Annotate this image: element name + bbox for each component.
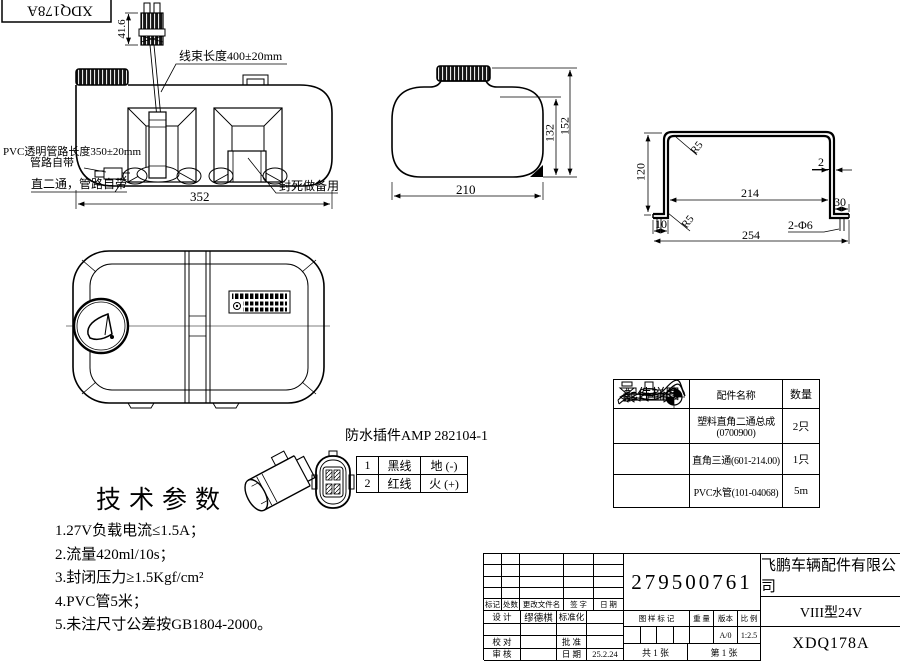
scale-value: 1:2.5: [738, 627, 761, 644]
revision-cell: [484, 588, 502, 599]
revision-cell: [594, 554, 624, 565]
dim-254: 254: [742, 229, 760, 242]
stamp-header-row: 图 样 标 记 重 量 版本 比 例: [624, 611, 761, 627]
pvc-tube-label-line2: 管路自带: [30, 157, 74, 169]
dim-132: 132: [543, 124, 556, 142]
pin-signal: 火 (+): [421, 475, 468, 493]
part-name: 塑料直角二通总成 (0700900): [690, 409, 783, 444]
tank-cap-front: [76, 69, 128, 85]
dim-152: 152: [558, 117, 571, 135]
part-qty: 2只: [783, 409, 820, 444]
check-label: 校 对: [484, 636, 521, 649]
date-value: 25.2.24: [587, 649, 624, 661]
strap-channel: [185, 251, 210, 403]
doc-code-rotated: XDQ178A: [14, 2, 106, 19]
sheet-row: 共 1 张 第 1 张: [624, 644, 761, 661]
sealed-spare-label: 封死做备用: [279, 180, 339, 193]
connector-pin: [334, 484, 340, 494]
empty-cell: [587, 624, 624, 637]
pin-wire: 红线: [379, 475, 421, 493]
tank-outline-side: [392, 81, 543, 177]
pump-connector-prong: [154, 3, 160, 13]
tech-param-item: 5.未注尺寸公差按GB1804-2000。: [55, 617, 272, 634]
drawing-number: XDQ178A: [761, 627, 900, 661]
straight-fitting-label: 直二通，管路自带: [31, 178, 127, 191]
title-block: 标记 处数 更改文件名 签 字 日 期 设 计 缪德棋 标准化 校 对 批 准 …: [483, 553, 900, 660]
revision-cell: [520, 554, 564, 565]
empty-cell: [521, 649, 557, 661]
connector-detail-drawing: [236, 444, 354, 514]
dim-41-6: 41.6: [116, 19, 128, 38]
revision-cell: [484, 577, 502, 588]
revision-cell: [564, 577, 594, 588]
revision-cell: [594, 565, 624, 576]
connector-pin: [326, 470, 332, 480]
washer-pump-body: [149, 112, 166, 178]
sealed-spare-plug: [228, 151, 266, 182]
revision-cell: [520, 588, 564, 599]
revision-cell: [502, 565, 520, 576]
pump-connector-prong: [144, 3, 150, 13]
part-qty: 1只: [783, 444, 820, 475]
engineering-drawing-sheet: { "page": {"background": "#ffffff", "ink…: [0, 0, 900, 660]
part-qty: 5m: [783, 475, 820, 508]
top-clip: [243, 75, 268, 85]
empty-cell: [657, 627, 674, 644]
sheet-total: 共 1 张: [624, 644, 688, 661]
empty-cell: [521, 624, 557, 637]
empty-cell: [557, 624, 587, 637]
stamp-header-scale: 比 例: [738, 611, 761, 627]
revision-cell: [502, 588, 520, 599]
revision-cell: [520, 577, 564, 588]
pin-number: 2: [357, 475, 379, 493]
revision-cell: [484, 554, 502, 565]
rev-header-sign: 签 字: [564, 599, 594, 611]
tank-outline-front: [76, 85, 332, 186]
tech-param-item: 2.流量420ml/10s；: [55, 547, 272, 564]
empty-cell: [587, 636, 624, 649]
dim-210: 210: [456, 183, 476, 197]
stamp-header-mark: 图 样 标 记: [624, 611, 690, 627]
part-name: PVC水管(101-04068): [690, 475, 783, 508]
dim-10: 10: [655, 218, 667, 231]
pvc-water-tube-icon: [614, 380, 686, 406]
empty-cell: [641, 627, 658, 644]
parts-table: 配件样图 配件名称 数量 塑料直角二通总成 (0700900) 2只: [613, 379, 820, 508]
designer-name: 缪德棋: [521, 611, 557, 624]
holes-2-d6-label: 2-Φ6: [788, 219, 813, 232]
review-label: 审 核: [484, 649, 521, 661]
table-row: 1 黑线 地 (-): [357, 457, 468, 475]
empty-cell: [624, 627, 641, 644]
empty-cell: [521, 636, 557, 649]
revision-header-row: 标记 处数 更改文件名 签 字 日 期: [484, 599, 624, 611]
model-name: VIII型24V: [761, 597, 900, 627]
empty-cell: [674, 627, 691, 644]
company-name: 飞鹏车辆配件有限公司: [761, 554, 900, 597]
revision-grid: [484, 554, 624, 599]
design-label: 设 计: [484, 611, 521, 624]
tech-param-item: 3.封闭压力≥1.5Kgf/cm²: [55, 570, 272, 587]
table-row: 2 红线 火 (+): [357, 475, 468, 493]
parts-header-qty: 数量: [783, 380, 820, 409]
dim-30: 30: [834, 196, 846, 209]
revision-cell: [520, 565, 564, 576]
pump-wire: [150, 45, 161, 118]
revision-cell: [564, 565, 594, 576]
tech-params-title: 技术参数: [96, 487, 228, 515]
parts-header-name: 配件名称: [690, 380, 783, 409]
revision-cell: [594, 588, 624, 599]
empty-cell: [587, 611, 624, 624]
tank-cap-side: [437, 66, 490, 81]
pin-wire: 黑线: [379, 457, 421, 475]
revision-cell: [502, 554, 520, 565]
connector-pin: [326, 484, 332, 494]
rev-header-date: 日 期: [594, 599, 624, 611]
top-view-drawing: [66, 251, 330, 408]
approve-label: 批 准: [557, 636, 587, 649]
dim-120: 120: [634, 163, 647, 181]
rev-header-file: 更改文件名: [520, 599, 564, 611]
harness-length-label: 线束长度400±20mm: [179, 50, 282, 63]
part-number: 279500761: [624, 554, 761, 611]
product-label-sticker: [229, 291, 290, 313]
version-value: A/0: [714, 627, 738, 644]
date-label: 日 期: [557, 649, 587, 661]
stamp-header-version: 版本: [714, 611, 738, 627]
weight-value: [690, 627, 714, 644]
revision-cell: [502, 577, 520, 588]
dim-thickness-2: 2: [812, 156, 830, 170]
pin-signal: 地 (-): [421, 457, 468, 475]
stamp-value-row: A/0 1:2.5: [624, 627, 761, 644]
revision-cell: [564, 554, 594, 565]
rev-header-count: 处数: [502, 599, 520, 611]
filler-cap-top: [74, 299, 128, 353]
table-row: 塑料直角二通总成 (0700900) 2只: [614, 409, 820, 444]
revision-cell: [594, 577, 624, 588]
connector-title: 防水插件AMP 282104-1: [345, 429, 488, 444]
sheet-index: 第 1 张: [688, 644, 761, 661]
dim-352: 352: [190, 190, 210, 204]
revision-cell: [564, 588, 594, 599]
connector-pinout-table: 1 黑线 地 (-) 2 红线 火 (+): [356, 456, 468, 493]
revision-cell: [484, 565, 502, 576]
part-name: 直角三通(601-214.00): [690, 444, 783, 475]
personnel-grid: 设 计 缪德棋 标准化 校 对 批 准 审 核 日 期 25.2.24: [484, 611, 624, 661]
tech-param-item: 4.PVC管5米；: [55, 594, 272, 611]
pin-number: 1: [357, 457, 379, 475]
connector-pin: [334, 470, 340, 480]
standardize-label: 标准化: [557, 611, 587, 624]
table-row: 直角三通(601-214.00) 1只: [614, 444, 820, 475]
stamp-header-weight: 重 量: [690, 611, 714, 627]
dim-214: 214: [741, 187, 759, 200]
tech-params-list: 1.27V负载电流≤1.5A； 2.流量420ml/10s； 3.封闭压力≥1.…: [55, 523, 272, 641]
rev-header-mark: 标记: [484, 599, 502, 611]
empty-cell: [484, 624, 521, 637]
table-row: PVC水管(101-04068) 5m: [614, 475, 820, 508]
connector-face: [316, 456, 350, 508]
tech-param-item: 1.27V负载电流≤1.5A；: [55, 523, 272, 540]
